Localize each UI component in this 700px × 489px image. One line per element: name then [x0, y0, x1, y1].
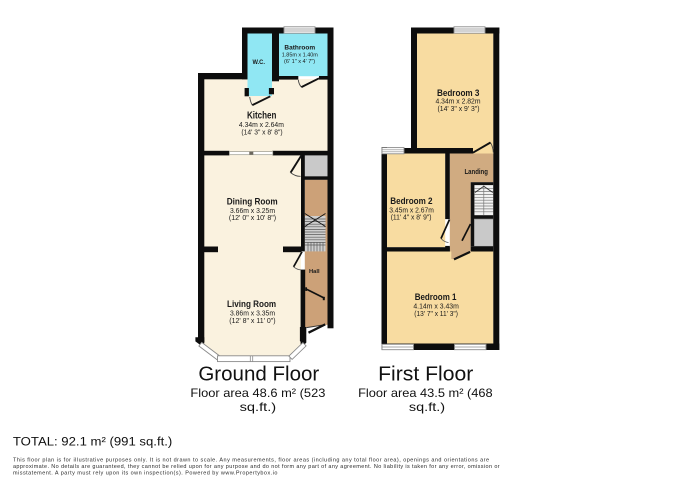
- svg-text:(14' 3" x 9' 3"): (14' 3" x 9' 3"): [438, 104, 480, 113]
- svg-text:approximate. No details are gu: approximate. No details are guaranteed, …: [13, 464, 500, 470]
- svg-text:First Floor: First Floor: [378, 363, 473, 386]
- svg-text:Ground Floor: Ground Floor: [198, 363, 319, 386]
- svg-text:sq.ft.): sq.ft.): [240, 400, 277, 414]
- svg-text:Bathroom: Bathroom: [284, 44, 315, 51]
- svg-text:Hall: Hall: [309, 269, 320, 275]
- svg-text:(14' 3" x 8' 8"): (14' 3" x 8' 8"): [241, 127, 283, 136]
- svg-text:(11' 4" x 8' 9"): (11' 4" x 8' 9"): [391, 213, 432, 222]
- svg-text:TOTAL: 92.1 m² (991 sq.ft.): TOTAL: 92.1 m² (991 sq.ft.): [13, 434, 172, 448]
- svg-text:Floor area 43.5 m² (468: Floor area 43.5 m² (468: [358, 386, 493, 400]
- svg-text:sq.ft.): sq.ft.): [409, 400, 445, 414]
- svg-text:This floor plan is for illustr: This floor plan is for illustrative purp…: [13, 457, 489, 463]
- svg-text:Bedroom 1: Bedroom 1: [415, 292, 457, 302]
- svg-text:Landing: Landing: [465, 167, 488, 176]
- svg-text:(12' 8" x 11' 0"): (12' 8" x 11' 0"): [229, 316, 276, 325]
- svg-text:(6' 1" x 4' 7"): (6' 1" x 4' 7"): [284, 59, 315, 65]
- svg-text:Floor area 48.6 m² (523: Floor area 48.6 m² (523: [190, 386, 325, 400]
- svg-text:(12' 0" x 10' 8"): (12' 0" x 10' 8"): [229, 213, 277, 222]
- svg-text:W.C.: W.C.: [252, 59, 265, 66]
- svg-text:misstatement. A party must rel: misstatement. A party must rely upon its…: [13, 471, 277, 477]
- svg-text:1.85m x 1.40m: 1.85m x 1.40m: [282, 53, 319, 59]
- svg-text:(13' 7" x 11' 3"): (13' 7" x 11' 3"): [414, 309, 458, 318]
